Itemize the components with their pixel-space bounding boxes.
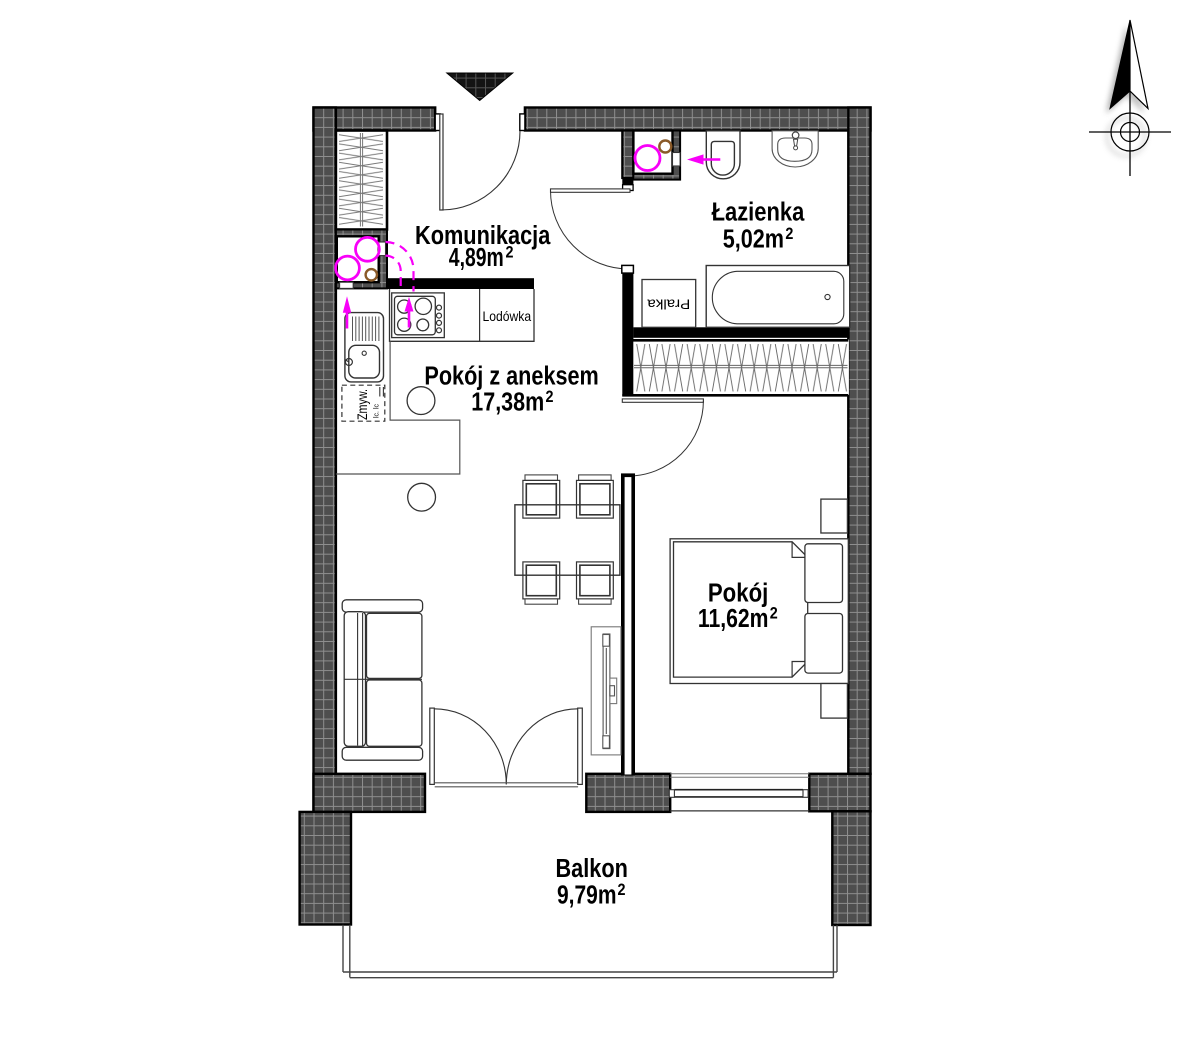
svg-text:11,62m: 11,62m (698, 605, 769, 633)
svg-text:5,02m: 5,02m (723, 226, 784, 254)
svg-text:2: 2 (618, 880, 626, 899)
svg-text:9,79m: 9,79m (557, 881, 617, 909)
svg-text:Pokój: Pokój (708, 580, 768, 608)
svg-text:2: 2 (770, 604, 778, 623)
svg-text:Pokój z aneksem: Pokój z aneksem (424, 363, 598, 391)
svg-text:lc. lc: lc. lc (374, 404, 381, 419)
svg-text:Pralka: Pralka (647, 296, 690, 312)
svg-text:2: 2 (785, 224, 793, 243)
svg-text:Lodówka: Lodówka (483, 308, 532, 324)
svg-text:17,38m: 17,38m (471, 389, 544, 417)
svg-text:2: 2 (546, 387, 554, 406)
svg-text:Łazienka: Łazienka (712, 198, 805, 226)
svg-text:Zmyw.: Zmyw. (354, 389, 370, 420)
svg-text:Balkon: Balkon (556, 855, 628, 883)
svg-text:4,89m: 4,89m (449, 244, 504, 272)
svg-text:2: 2 (506, 243, 514, 262)
